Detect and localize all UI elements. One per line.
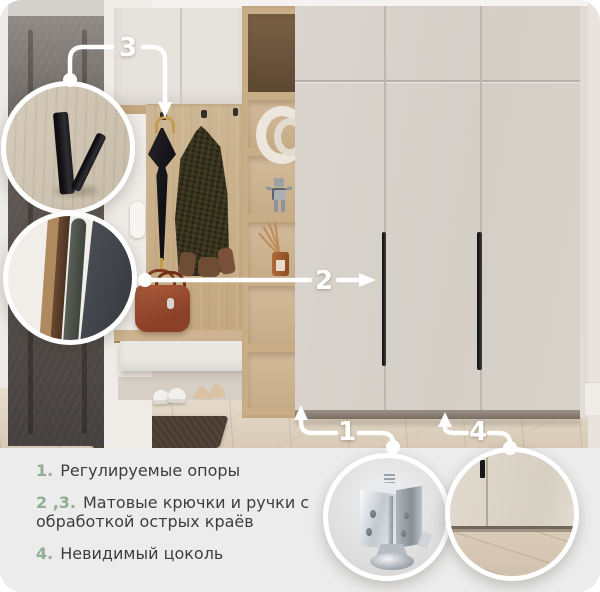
bag-charm	[167, 298, 174, 309]
legend-number: 2 ,3.	[36, 493, 76, 512]
inset-handle-profile-detail	[3, 211, 137, 345]
wall-hook	[201, 110, 207, 118]
foot-bracket	[396, 486, 422, 549]
diffuser-label	[276, 260, 285, 271]
bracket-hole	[370, 510, 376, 518]
umbrella-handle	[155, 116, 175, 133]
legend-item-4: 4.Невидимый цоколь	[36, 544, 358, 563]
baseboard	[585, 382, 600, 415]
shelf-cubby	[248, 14, 300, 92]
plinth-handle-tip	[480, 460, 485, 478]
wardrobe-plinth	[295, 410, 580, 419]
robot-figurine	[274, 200, 278, 212]
foot-rod	[388, 496, 393, 544]
wardrobe-handle	[477, 232, 482, 370]
wardrobe-handle	[382, 232, 386, 366]
wardrobe-shadow	[295, 419, 580, 425]
bracket-hole	[366, 528, 372, 536]
door-edge-panel	[78, 212, 137, 345]
wardrobe	[295, 6, 580, 419]
wardrobe-seam	[295, 80, 580, 82]
plinth-door-seam	[486, 452, 488, 528]
legend-item-2-3: 2 ,3.Матовые крючки и ручки с обработкой…	[36, 493, 358, 531]
leather-bag	[135, 285, 190, 332]
legend-number: 4.	[36, 544, 53, 563]
matte-hook-icon	[71, 132, 107, 192]
right-wall	[588, 0, 600, 448]
robot-figurine	[281, 200, 285, 212]
shelf-cubby	[248, 286, 300, 344]
intercom-handset	[130, 202, 145, 238]
furniture-product-card: 1.Регулируемые опоры 2 ,3.Матовые крючки…	[0, 0, 600, 592]
bracket-hole	[404, 512, 409, 519]
bracket-hole	[401, 530, 406, 537]
upper-cabinets	[114, 8, 246, 105]
inset-hook-detail	[1, 81, 135, 215]
legend-item-1: 1.Регулируемые опоры	[36, 461, 358, 480]
robot-figurine	[274, 178, 284, 187]
inset-adjustable-foot-detail	[323, 453, 451, 581]
legend-text: Невидимый цоколь	[60, 544, 223, 563]
wardrobe-side-panel	[580, 6, 588, 418]
robot-figurine	[272, 188, 286, 200]
wall-hook	[233, 108, 238, 116]
plinth-door-bottom	[450, 452, 579, 528]
shelf-cubby	[248, 352, 300, 408]
legend-text: Регулируемые опоры	[60, 461, 240, 480]
coat-trim	[198, 257, 220, 277]
matte-hook-icon	[53, 112, 75, 195]
bench-drawer	[120, 341, 246, 371]
legend-number: 1.	[36, 461, 53, 480]
plinth-floor	[450, 532, 579, 581]
cabinet-seam	[180, 8, 182, 105]
inset-plinth-detail	[445, 447, 579, 581]
sneaker	[168, 388, 187, 404]
legend-text: Матовые крючки и ручки с обработкой остр…	[36, 493, 309, 531]
foot-base	[370, 553, 414, 570]
